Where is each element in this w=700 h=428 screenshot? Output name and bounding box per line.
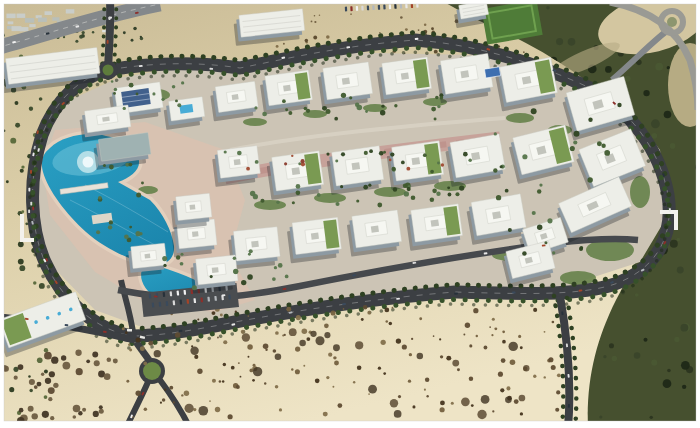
- vegetation-dot: [379, 32, 381, 34]
- vegetation-dot: [285, 108, 288, 111]
- vegetation-dot: [126, 380, 129, 383]
- vegetation-dot: [310, 331, 316, 337]
- vegetation-dot: [426, 395, 428, 397]
- vegetation-dot: [557, 373, 561, 377]
- vegetation-dot: [502, 340, 506, 344]
- vegetation-dot: [240, 376, 242, 378]
- vegetation-dot: [459, 185, 464, 190]
- vegetation-dot: [411, 195, 416, 200]
- vegetation-dot: [49, 371, 55, 377]
- vegetation-dot: [317, 193, 321, 197]
- vegetation-dot: [311, 21, 313, 23]
- vegetation-dot: [78, 411, 82, 415]
- vegetation-dot: [285, 275, 289, 279]
- vegetation-dot: [328, 353, 332, 357]
- vegetation-dot: [247, 274, 253, 280]
- vegetation-dot: [533, 375, 536, 378]
- vegetation-dot: [609, 343, 614, 348]
- vegetation-dot: [123, 31, 126, 34]
- roof-unit: [460, 70, 469, 78]
- vegetation-dot: [667, 66, 670, 69]
- vegetation-dot: [514, 399, 519, 404]
- car: [561, 311, 563, 315]
- vegetation-dot: [44, 348, 48, 352]
- vegetation-dot: [39, 283, 45, 289]
- vegetation-dot: [233, 269, 238, 274]
- vegetation-dot: [552, 251, 555, 254]
- vegetation-dot: [506, 386, 510, 390]
- vegetation-dot: [335, 202, 339, 206]
- vegetation-dot: [282, 99, 286, 103]
- vegetation-dot: [681, 361, 690, 370]
- building: [211, 146, 261, 187]
- vegetation-dot: [305, 39, 308, 42]
- vegetation-dot: [169, 386, 173, 390]
- vegetation-dot: [393, 187, 397, 191]
- vegetation-dot: [10, 138, 16, 144]
- vegetation-dot: [389, 159, 392, 162]
- vegetation-dot: [677, 267, 684, 274]
- vegetation-dot: [587, 177, 592, 182]
- vegetation-dot: [398, 395, 401, 398]
- vegetation-dot: [212, 379, 216, 383]
- garden-patch: [506, 113, 534, 123]
- vegetation-dot: [378, 367, 381, 370]
- vegetation-dot: [368, 385, 377, 394]
- vegetation-dot: [335, 159, 338, 162]
- vegetation-dot: [381, 105, 384, 108]
- vegetation-dot: [617, 103, 621, 107]
- car: [542, 244, 546, 246]
- vegetation-dot: [663, 379, 672, 388]
- vegetation-dot: [19, 408, 24, 413]
- building: [346, 210, 403, 257]
- vegetation-dot: [368, 393, 370, 395]
- north-access-road: [108, 0, 110, 70]
- vegetation-dot: [519, 395, 526, 402]
- roof-unit: [352, 162, 361, 170]
- vegetation-dot: [315, 378, 320, 383]
- vegetation-dot: [471, 404, 474, 407]
- frame-bottom: [0, 421, 700, 428]
- vegetation-dot: [247, 356, 249, 358]
- vegetation-dot: [295, 346, 300, 351]
- vegetation-dot: [114, 88, 117, 91]
- vegetation-dot: [44, 370, 48, 374]
- vegetation-dot: [129, 226, 132, 229]
- distant-building: [6, 14, 15, 19]
- vegetation-dot: [597, 141, 602, 146]
- vegetation-dot: [154, 350, 161, 357]
- vegetation-dot: [385, 308, 390, 313]
- vegetation-dot: [355, 341, 363, 349]
- vegetation-dot: [588, 118, 592, 122]
- aerial-render: [0, 0, 700, 428]
- vegetation-dot: [278, 263, 283, 268]
- building: [317, 62, 374, 109]
- vegetation-dot: [477, 410, 486, 419]
- vegetation-dot: [469, 344, 472, 347]
- frame-top: [0, 0, 700, 4]
- vegetation-dot: [107, 357, 112, 362]
- vegetation-dot: [15, 101, 19, 105]
- parked-car: [383, 5, 385, 10]
- vegetation-dot: [324, 323, 329, 328]
- vegetation-dot: [556, 38, 563, 45]
- parked-car: [367, 5, 369, 10]
- vegetation-dot: [537, 189, 541, 193]
- vegetation-dot: [180, 262, 184, 266]
- vegetation-dot: [264, 382, 266, 384]
- vegetation-dot: [272, 277, 276, 281]
- vegetation-dot: [625, 76, 631, 82]
- vegetation-dot: [141, 182, 144, 185]
- vegetation-dot: [45, 378, 51, 384]
- vegetation-dot: [357, 365, 362, 370]
- vegetation-dot: [164, 388, 166, 390]
- vegetation-dot: [48, 387, 55, 394]
- vegetation-dot: [99, 409, 104, 414]
- vegetation-dot: [75, 350, 81, 356]
- vegetation-dot: [82, 408, 86, 412]
- vegetation-dot: [122, 327, 125, 330]
- vegetation-dot: [247, 344, 252, 349]
- vegetation-dot: [144, 407, 148, 411]
- vegetation-dot: [131, 39, 134, 42]
- vegetation-dot: [664, 111, 672, 119]
- vegetation-dot: [253, 364, 256, 367]
- building: [286, 217, 342, 263]
- vegetation-dot: [508, 342, 517, 351]
- building: [170, 193, 213, 229]
- vegetation-dot: [223, 340, 227, 344]
- vegetation-dot: [356, 199, 359, 202]
- vegetation-dot: [544, 241, 547, 244]
- vegetation-dot: [492, 318, 495, 321]
- vegetation-dot: [215, 407, 220, 412]
- vegetation-dot: [451, 402, 454, 405]
- vegetation-dot: [401, 160, 405, 164]
- vegetation-dot: [573, 140, 577, 144]
- building: [326, 146, 385, 195]
- vegetation-dot: [498, 372, 503, 377]
- vegetation-dot: [555, 408, 559, 412]
- vegetation-dot: [37, 382, 42, 387]
- garden-patch: [243, 118, 267, 126]
- vegetation-dot: [353, 381, 355, 383]
- vegetation-dot: [303, 365, 305, 367]
- building: [386, 141, 445, 190]
- fountain-core: [83, 157, 94, 168]
- car: [454, 293, 458, 295]
- vegetation-dot: [180, 253, 183, 256]
- vegetation-dot: [431, 27, 434, 30]
- vegetation-dot: [408, 379, 411, 382]
- vegetation-dot: [407, 187, 411, 191]
- vegetation-dot: [136, 337, 141, 342]
- vegetation-dot: [667, 369, 671, 373]
- vegetation-dot: [343, 308, 345, 310]
- car: [107, 40, 109, 44]
- roof-unit: [471, 152, 480, 160]
- vegetation-dot: [434, 50, 438, 54]
- vegetation-dot: [452, 360, 459, 367]
- vegetation-dot: [273, 349, 277, 353]
- building: [190, 255, 239, 294]
- vegetation-dot: [18, 364, 24, 370]
- vegetation-dot: [253, 194, 258, 199]
- vegetation-dot: [274, 266, 277, 269]
- roof-unit: [311, 232, 319, 239]
- vegetation-dot: [670, 240, 678, 248]
- vegetation-dot: [635, 293, 639, 297]
- vegetation-dot: [323, 412, 328, 417]
- vegetation-dot: [20, 169, 24, 173]
- vegetation-dot: [76, 368, 83, 375]
- vegetation-dot: [51, 357, 58, 364]
- vegetation-dot: [440, 407, 445, 412]
- vegetation-dot: [253, 367, 262, 376]
- vegetation-dot: [109, 220, 113, 224]
- vegetation-dot: [175, 332, 181, 338]
- car: [30, 202, 32, 206]
- vegetation-dot: [523, 51, 525, 53]
- roof-unit: [371, 225, 379, 232]
- vegetation-dot: [568, 38, 576, 46]
- vegetation-dot: [176, 255, 180, 259]
- vegetation-dot: [368, 184, 371, 187]
- vegetation-dot: [41, 373, 44, 376]
- vegetation-dot: [172, 85, 176, 89]
- vegetation-dot: [505, 189, 509, 193]
- vegetation-dot: [350, 13, 352, 15]
- vegetation-dot: [98, 196, 102, 200]
- vegetation-dot: [198, 406, 208, 416]
- vegetation-dot: [9, 387, 14, 392]
- vegetation-dot: [385, 320, 388, 323]
- vegetation-dot: [292, 201, 295, 204]
- vegetation-dot: [431, 107, 436, 112]
- distant-building: [38, 18, 47, 22]
- vegetation-dot: [34, 385, 38, 389]
- vegetation-dot: [644, 338, 648, 342]
- vegetation-dot: [296, 184, 301, 189]
- vegetation-dot: [334, 361, 339, 366]
- building: [376, 57, 433, 104]
- vegetation-dot: [284, 162, 287, 165]
- vegetation-dot: [400, 16, 403, 19]
- distant-building: [8, 21, 14, 24]
- vegetation-dot: [128, 163, 132, 167]
- vegetation-dot: [349, 96, 352, 99]
- car: [154, 295, 158, 297]
- vegetation-dot: [363, 185, 368, 190]
- vegetation-dot: [402, 344, 407, 349]
- vegetation-dot: [124, 234, 129, 239]
- car: [29, 175, 31, 179]
- vegetation-dot: [406, 167, 410, 171]
- vegetation-dot: [82, 31, 85, 34]
- vegetation-dot: [468, 159, 472, 163]
- vegetation-dot: [94, 360, 100, 366]
- vegetation-dot: [473, 308, 478, 313]
- vegetation-dot: [263, 343, 269, 349]
- vegetation-dot: [676, 238, 680, 242]
- vegetation-dot: [469, 376, 473, 380]
- roof-unit: [292, 167, 301, 175]
- vegetation-dot: [175, 99, 178, 102]
- vegetation-dot: [185, 404, 194, 413]
- vegetation-dot: [476, 335, 478, 337]
- vegetation-dot: [148, 341, 153, 346]
- vegetation-dot: [423, 153, 427, 157]
- vegetation-dot: [417, 353, 423, 359]
- car: [30, 170, 32, 174]
- vegetation-dot: [279, 408, 282, 411]
- vegetation-dot: [125, 331, 128, 334]
- vegetation-dot: [123, 107, 126, 110]
- vegetation-dot: [481, 395, 490, 404]
- garden-patch: [374, 187, 406, 197]
- vegetation-dot: [48, 397, 52, 401]
- vegetation-dot: [224, 150, 227, 153]
- vegetation-dot: [369, 149, 373, 153]
- vegetation-dot: [505, 397, 512, 404]
- roof-unit: [412, 157, 421, 165]
- garden-patch: [630, 176, 650, 208]
- vegetation-dot: [337, 403, 342, 408]
- vegetation-dot: [367, 311, 371, 315]
- vegetation-dot: [599, 415, 602, 418]
- vegetation-dot: [522, 154, 527, 159]
- vegetation-dot: [223, 363, 226, 366]
- vegetation-dot: [389, 322, 392, 325]
- vegetation-dot: [231, 366, 235, 370]
- vegetation-dot: [103, 164, 106, 167]
- building: [266, 151, 325, 200]
- vegetation-dot: [546, 6, 549, 9]
- vegetation-dot: [136, 93, 139, 96]
- vegetation-dot: [326, 153, 329, 156]
- vegetation-dot: [29, 107, 33, 111]
- vegetation-dot: [296, 315, 301, 320]
- vegetation-dot: [111, 80, 114, 83]
- vegetation-dot: [53, 383, 58, 388]
- vegetation-dot: [222, 380, 224, 382]
- vegetation-dot: [217, 337, 219, 339]
- vegetation-dot: [286, 307, 291, 312]
- garden-patch: [560, 271, 596, 285]
- interchange-island: [667, 17, 677, 27]
- vegetation-dot: [651, 360, 657, 366]
- vegetation-dot: [391, 167, 395, 171]
- building: [434, 53, 494, 103]
- roof-unit: [192, 231, 199, 237]
- vegetation-dot: [28, 406, 34, 412]
- vegetation-dot: [537, 224, 542, 229]
- parked-car: [372, 5, 374, 10]
- vegetation-dot: [209, 400, 211, 402]
- vegetation-dot: [104, 373, 111, 380]
- vegetation-dot: [288, 111, 292, 115]
- vegetation-dot: [603, 355, 606, 358]
- building: [209, 81, 259, 121]
- car: [209, 68, 213, 70]
- vegetation-dot: [419, 317, 422, 320]
- vegetation-dot: [440, 355, 443, 358]
- vegetation-dot: [129, 83, 134, 88]
- vegetation-dot: [136, 192, 141, 197]
- vegetation-dot: [33, 281, 37, 285]
- vegetation-dot: [544, 331, 546, 333]
- roof-unit: [234, 159, 241, 165]
- vegetation-dot: [265, 349, 267, 351]
- roundabout-green-island: [103, 65, 114, 76]
- vegetation-dot: [502, 330, 505, 333]
- vegetation-dot: [314, 15, 316, 17]
- vegetation-dot: [301, 159, 305, 163]
- vegetation-dot: [241, 280, 246, 285]
- vegetation-dot: [289, 328, 297, 336]
- vegetation-dot: [32, 413, 38, 419]
- vegetation-dot: [162, 256, 167, 261]
- vegetation-dot: [500, 388, 504, 392]
- vegetation-dot: [135, 231, 140, 236]
- roof-unit: [212, 267, 219, 273]
- vegetation-dot: [539, 183, 542, 186]
- vegetation-dot: [109, 165, 114, 170]
- vegetation-dot: [304, 107, 308, 111]
- vegetation-dot: [520, 346, 523, 349]
- vegetation-dot: [533, 308, 537, 312]
- vegetation-dot: [275, 353, 282, 360]
- vegetation-dot: [163, 264, 166, 267]
- parked-car: [389, 4, 391, 9]
- vegetation-dot: [192, 285, 197, 290]
- building: [125, 243, 168, 277]
- roof-unit: [492, 211, 501, 219]
- vegetation-dot: [532, 211, 536, 215]
- vegetation-dot: [152, 92, 155, 95]
- frame-left: [0, 0, 4, 428]
- roof-unit: [342, 77, 350, 84]
- vegetation-dot: [210, 275, 213, 278]
- vegetation-dot: [93, 411, 99, 417]
- vegetation-dot: [284, 334, 286, 336]
- vegetation-dot: [493, 168, 497, 172]
- vegetation-dot: [430, 170, 434, 174]
- car: [568, 404, 570, 408]
- vegetation-dot: [551, 365, 556, 370]
- car: [669, 208, 671, 212]
- vegetation-dot: [276, 45, 279, 48]
- vegetation-dot: [162, 398, 165, 401]
- vegetation-dot: [296, 191, 301, 196]
- vegetation-dot: [326, 376, 329, 379]
- roof-unit: [283, 85, 291, 92]
- vegetation-dot: [29, 379, 35, 385]
- vegetation-dot: [463, 152, 468, 157]
- car: [566, 343, 568, 347]
- vegetation-dot: [194, 355, 198, 359]
- vegetation-dot: [448, 193, 452, 197]
- parked-car: [361, 6, 363, 11]
- vegetation-dot: [357, 105, 363, 111]
- vegetation-dot: [394, 410, 402, 418]
- vegetation-dot: [313, 36, 317, 40]
- vegetation-dot: [173, 401, 175, 403]
- vegetation-dot: [73, 405, 81, 413]
